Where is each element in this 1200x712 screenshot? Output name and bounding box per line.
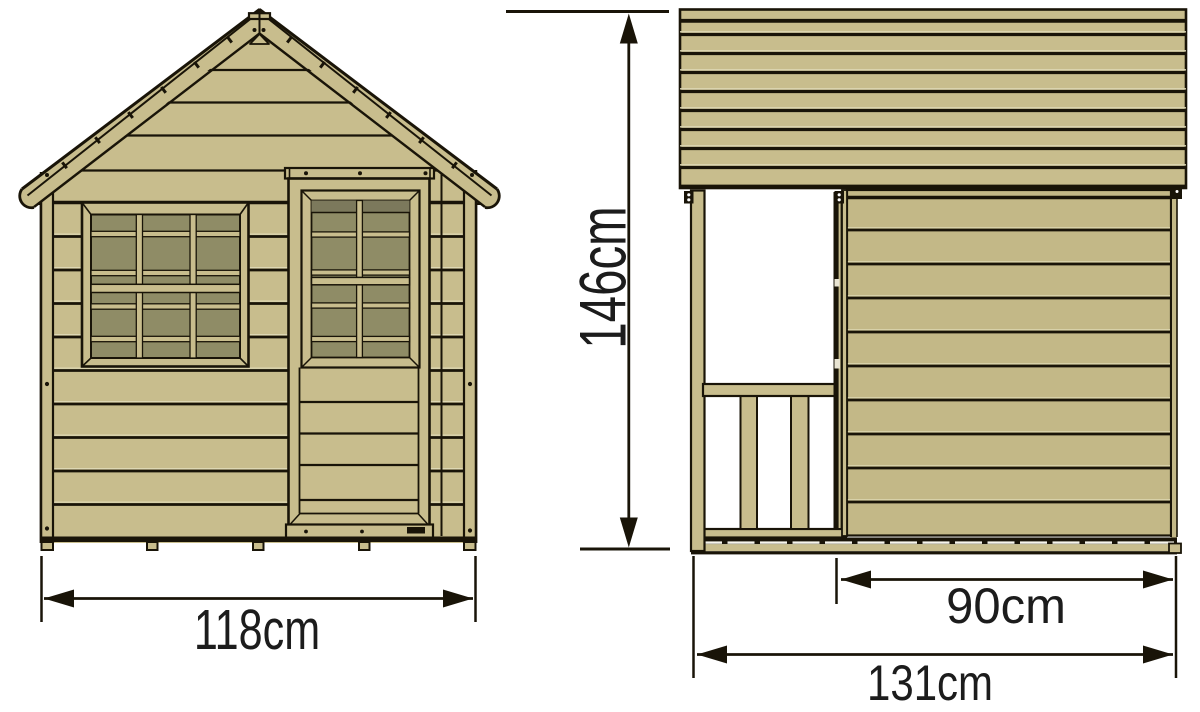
svg-text:118cm: 118cm (194, 597, 320, 661)
svg-text:146cm: 146cm (567, 206, 640, 348)
svg-text:90cm: 90cm (946, 579, 1066, 635)
svg-text:131cm: 131cm (867, 655, 993, 711)
